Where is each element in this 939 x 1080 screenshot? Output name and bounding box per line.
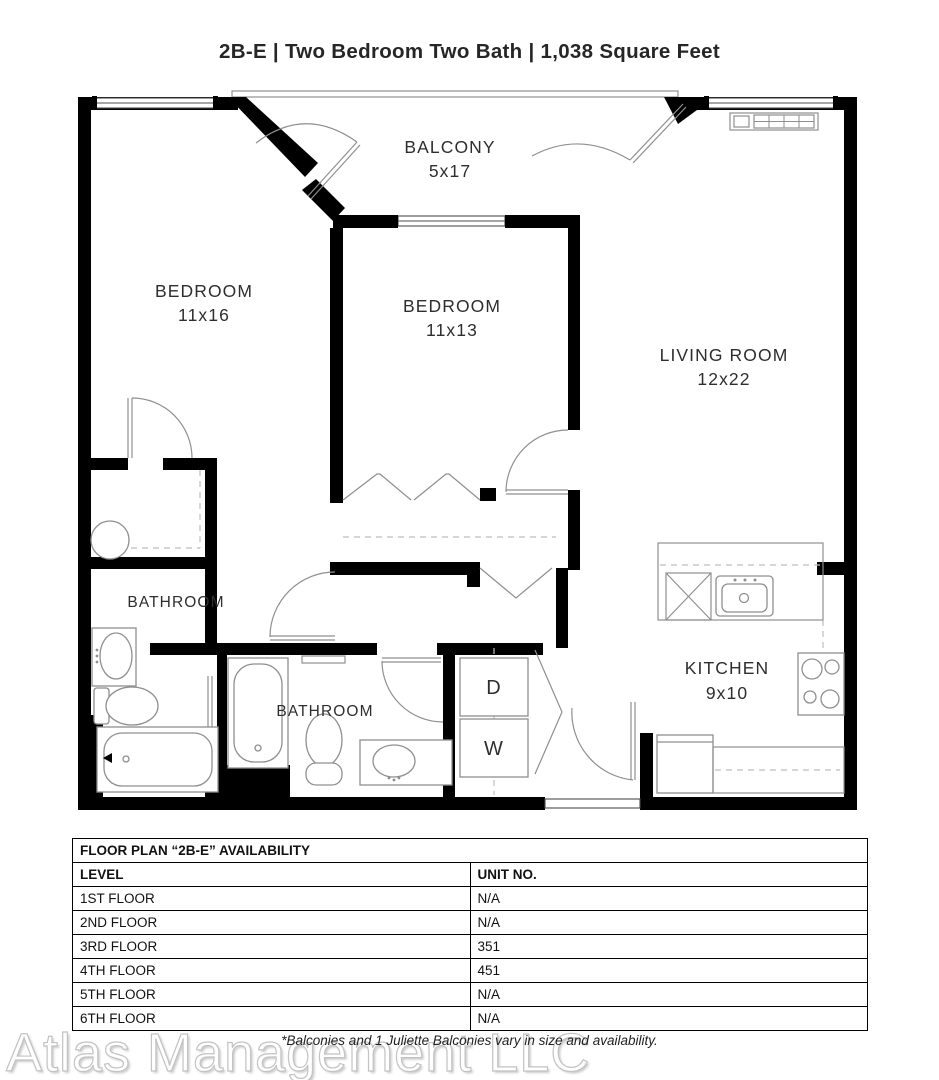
table-row: 4TH FLOOR 451 xyxy=(73,959,868,983)
table-title-row: FLOOR PLAN “2B-E” AVAILABILITY xyxy=(73,839,868,863)
bathroom-center-fixtures xyxy=(228,656,452,785)
unit-cell: N/A xyxy=(470,911,868,935)
table-row: 3RD FLOOR 351 xyxy=(73,935,868,959)
refrigerator xyxy=(657,735,713,793)
table-title: FLOOR PLAN “2B-E” AVAILABILITY xyxy=(73,839,868,863)
balcony-dims: 5x17 xyxy=(429,161,471,181)
toilet xyxy=(94,687,158,725)
stove-burners xyxy=(798,653,844,715)
living-room-dims: 12x22 xyxy=(697,369,750,389)
wall-heater xyxy=(730,113,818,130)
counter-bottom xyxy=(713,747,844,793)
entry-threshold xyxy=(545,799,640,808)
dishwasher xyxy=(666,573,711,620)
watermark: Atlas Management LLC xyxy=(6,1022,590,1080)
kitchen-dims: 9x10 xyxy=(706,683,748,703)
bathtub xyxy=(97,727,218,792)
table-row: 5TH FLOOR N/A xyxy=(73,983,868,1007)
toilet xyxy=(306,714,342,785)
unit-cell: 351 xyxy=(470,935,868,959)
bathroom-center-label: BATHROOM xyxy=(276,703,373,720)
balcony-railing xyxy=(232,91,678,97)
water-heater xyxy=(91,521,129,559)
table-header-row: LEVEL UNIT NO. xyxy=(73,863,868,887)
level-cell: 4TH FLOOR xyxy=(73,959,471,983)
floor-plan-page: 2B-E | Two Bedroom Two Bath | 1,038 Squa… xyxy=(0,0,939,1080)
table-row: 2ND FLOOR N/A xyxy=(73,911,868,935)
bedroom-left-label: BEDROOM xyxy=(155,281,253,301)
column-header-unit: UNIT NO. xyxy=(470,863,868,887)
living-room-label: LIVING ROOM xyxy=(660,345,789,365)
bathtub xyxy=(228,658,288,784)
sink xyxy=(373,745,415,777)
kitchen-label: KITCHEN xyxy=(685,658,770,678)
bedroom-middle-label: BEDROOM xyxy=(403,296,501,316)
column-header-level: LEVEL xyxy=(73,863,471,887)
table-row: 1ST FLOOR N/A xyxy=(73,887,868,911)
availability-table: FLOOR PLAN “2B-E” AVAILABILITY LEVEL UNI… xyxy=(72,838,868,1031)
level-cell: 2ND FLOOR xyxy=(73,911,471,935)
level-cell: 1ST FLOOR xyxy=(73,887,471,911)
balcony-label: BALCONY xyxy=(404,137,495,157)
towel-bar xyxy=(302,656,345,663)
sink xyxy=(100,633,132,679)
washer-label: W xyxy=(484,738,504,760)
level-cell: 5TH FLOOR xyxy=(73,983,471,1007)
bedroom-middle-dims: 11x13 xyxy=(426,320,478,340)
dryer-label: D xyxy=(486,677,502,699)
balcony-door-right xyxy=(532,104,686,163)
footnote: *Balconies and 1 Juliette Balconies vary… xyxy=(0,1033,939,1048)
unit-cell: 451 xyxy=(470,959,868,983)
level-cell: 3RD FLOOR xyxy=(73,935,471,959)
kitchen-sink xyxy=(716,576,773,616)
bathroom-left-label: BATHROOM xyxy=(127,594,224,611)
unit-cell: N/A xyxy=(470,887,868,911)
bedroom-left-dims: 11x16 xyxy=(178,305,230,325)
unit-cell: N/A xyxy=(470,983,868,1007)
